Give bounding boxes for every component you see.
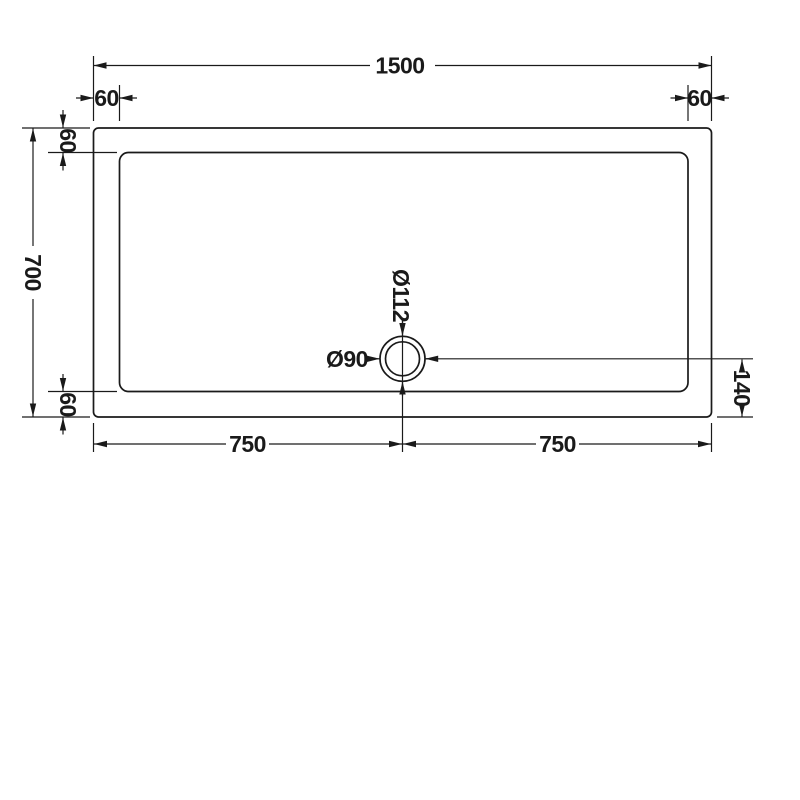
extension-lines-group <box>22 56 753 452</box>
dim-half-width-left-label: 750 <box>229 431 266 457</box>
dim-half-width-right-label: 750 <box>539 431 576 457</box>
dim-drain-inner-diameter-label: Ø90 <box>326 346 368 372</box>
dimension-lines-group <box>33 66 742 445</box>
dim-corner-inset-top-left-label: 60 <box>94 85 119 111</box>
dim-drain-outer-diameter-label: Ø112 <box>388 269 414 322</box>
dim-edge-inset-left-top-label: 60 <box>55 128 81 153</box>
dim-edge-inset-left-bottom-label: 60 <box>55 392 81 417</box>
dim-overall-depth-label: 700 <box>20 254 46 291</box>
dim-overall-width-label: 1500 <box>375 53 424 79</box>
dim-drain-center-from-bottom-label: 140 <box>729 370 755 407</box>
dimension-labels-group: 1500 60 60 700 60 60 750 750 140 Ø112 Ø9… <box>20 53 755 458</box>
shower-tray-plan-drawing: 1500 60 60 700 60 60 750 750 140 Ø112 Ø9… <box>0 0 800 800</box>
dim-corner-inset-top-right-label: 60 <box>687 85 712 111</box>
technical-drawing-canvas: 1500 60 60 700 60 60 750 750 140 Ø112 Ø9… <box>0 0 800 800</box>
